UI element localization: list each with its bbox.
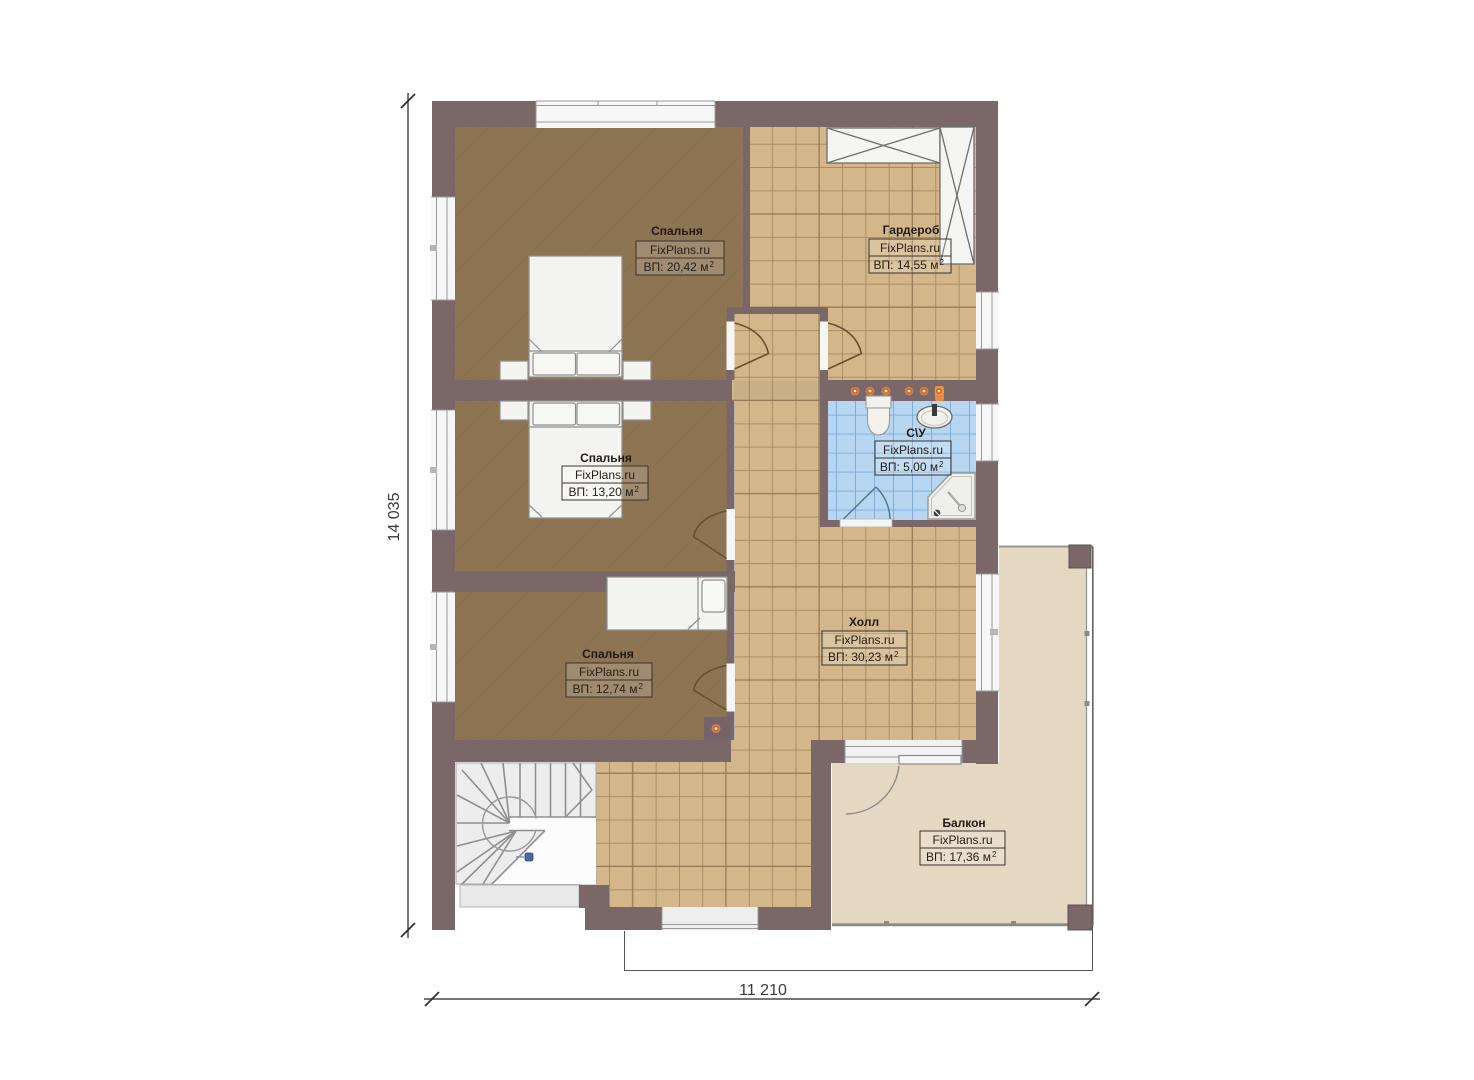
svg-text:2: 2 [894,650,899,659]
svg-text:FixPlans.ru: FixPlans.ru [932,833,992,847]
svg-text:FixPlans.ru: FixPlans.ru [880,241,940,255]
svg-text:FixPlans.ru: FixPlans.ru [575,468,635,482]
svg-text:ВП: 30,23 м: ВП: 30,23 м [828,650,893,664]
svg-text:ВП: 12,74 м: ВП: 12,74 м [573,682,638,696]
svg-text:Гардероб: Гардероб [883,223,940,237]
svg-text:14 035: 14 035 [386,492,403,541]
svg-text:ВП: 20,42 м: ВП: 20,42 м [644,260,709,274]
svg-text:2: 2 [635,485,640,494]
svg-text:ВП: 17,36 м: ВП: 17,36 м [926,850,991,864]
svg-text:Спальня: Спальня [651,224,703,238]
svg-text:ВП: 5,00 м: ВП: 5,00 м [880,460,938,474]
svg-text:FixPlans.ru: FixPlans.ru [834,633,894,647]
svg-text:2: 2 [710,260,715,269]
svg-text:2: 2 [639,682,644,691]
svg-text:FixPlans.ru: FixPlans.ru [883,443,943,457]
svg-text:2: 2 [992,850,997,859]
svg-text:11 210: 11 210 [739,982,787,999]
svg-text:FixPlans.ru: FixPlans.ru [650,243,710,257]
svg-text:ВП: 13,20 м: ВП: 13,20 м [569,485,634,499]
svg-text:FixPlans.ru: FixPlans.ru [579,665,639,679]
svg-text:Холл: Холл [849,615,879,629]
svg-text:Спальня: Спальня [582,647,634,661]
svg-text:2: 2 [939,460,944,469]
svg-text:С\У: С\У [906,426,926,440]
svg-text:Балкон: Балкон [942,816,985,830]
svg-text:2: 2 [940,258,945,267]
svg-text:Спальня: Спальня [580,451,632,465]
svg-text:ВП: 14,55 м: ВП: 14,55 м [874,258,939,272]
